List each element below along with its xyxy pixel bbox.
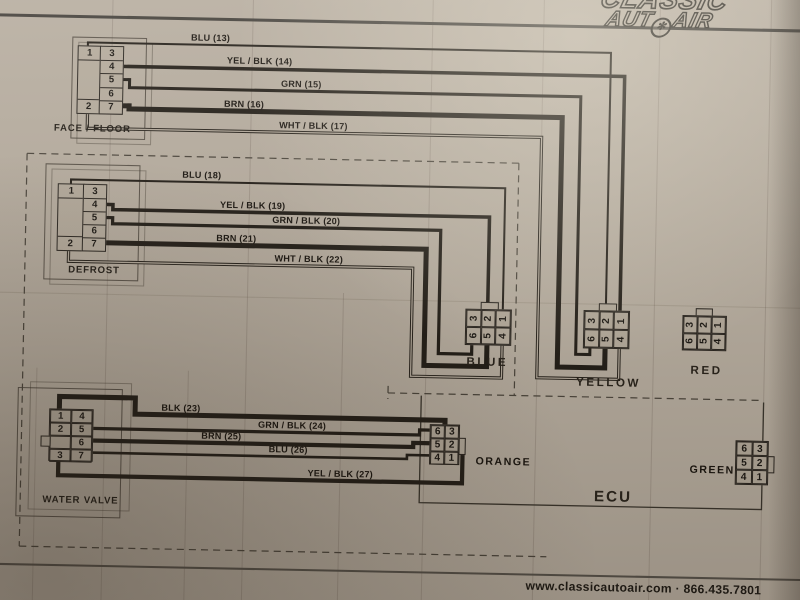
pin: 6	[584, 329, 599, 347]
wire-brn-16	[116, 106, 610, 368]
wire-label: BLU (18)	[182, 170, 221, 181]
pin: 2	[481, 310, 496, 327]
face-floor-label: FACE / FLOOR	[54, 123, 131, 136]
pin: 3	[445, 425, 459, 438]
wire-label: BRN (21)	[216, 233, 256, 244]
pin: 1	[711, 317, 725, 334]
pin: 1	[614, 312, 629, 330]
wire-blk-23	[59, 396, 445, 426]
pin: 2	[444, 439, 458, 452]
water-valve-label: WATER VALVE	[42, 494, 118, 507]
paper-sheet: Wiring Schematic / REVERSE CLASSIC AUT✻A…	[0, 0, 800, 600]
red-connector: 3 2 1 6 5 4	[682, 315, 727, 351]
pin: 7	[70, 449, 91, 463]
wire-brn-25	[91, 436, 430, 447]
wire-blu-13	[83, 42, 611, 310]
wire-label: WHT / BLK (17)	[279, 120, 348, 131]
pin: 1	[59, 184, 85, 199]
wire-label: GRN (15)	[281, 79, 322, 90]
pin: 4	[711, 333, 725, 350]
wire-grn-blk-20	[102, 218, 474, 355]
green-connector: 6 3 5 2 4 1	[735, 440, 769, 485]
defrost-right-column: 3 4 5 6 7	[82, 184, 108, 252]
pin: 3	[49, 449, 70, 463]
orange-connector: 6 3 5 2 4 1	[429, 424, 460, 465]
pin: 5	[697, 333, 711, 350]
pin: 7	[100, 100, 122, 114]
pin: 5	[481, 327, 496, 344]
wire-label: GRN / BLK (20)	[272, 215, 340, 226]
pin: 4	[430, 451, 444, 464]
pin: 1	[444, 452, 458, 465]
pin: 2	[599, 311, 614, 329]
pin: 4	[495, 327, 510, 344]
green-connector-label: GREEN	[689, 464, 735, 477]
face-floor-right-column: 3 4 5 6 7	[99, 46, 125, 115]
wire-label: YEL / BLK (14)	[227, 55, 292, 66]
wire-label: YEL / BLK (27)	[307, 468, 372, 479]
red-connector-label: RED	[690, 365, 722, 378]
water-valve-tab	[40, 435, 50, 446]
pin: 1	[496, 310, 511, 327]
pin: 3	[683, 316, 697, 333]
pin	[49, 436, 70, 450]
pin: 5	[71, 423, 92, 437]
wire-label: BLU (13)	[191, 32, 230, 43]
pin: 3	[466, 310, 481, 327]
pin: 4	[71, 410, 92, 424]
pin: 2	[50, 423, 71, 437]
pin: 6	[736, 441, 752, 455]
pin: 4	[736, 470, 752, 484]
water-valve-grid: 1 4 2 5 6 3 7	[48, 408, 93, 461]
pin: 5	[736, 455, 752, 469]
brand-logo: CLASSIC AUT✻AIR	[590, 0, 732, 46]
pin: 5	[430, 438, 444, 451]
pin: 2	[697, 316, 711, 333]
wire-label: WHT / BLK (22)	[274, 253, 343, 264]
pin: 5	[599, 329, 614, 347]
wire-label: BRN (25)	[201, 431, 241, 442]
pin: 1	[78, 46, 100, 61]
defrost-label: DEFROST	[68, 264, 120, 276]
yellow-connector-label: YELLOW	[576, 376, 641, 389]
pin: 6	[71, 436, 92, 450]
wire-label: BRN (16)	[224, 99, 264, 110]
pin: 6	[466, 327, 481, 344]
pin: 1	[50, 409, 71, 423]
wire-blu-26	[91, 449, 430, 460]
pin: 4	[613, 330, 628, 348]
wire-label: YEL / BLK (19)	[220, 200, 285, 211]
pin: 2	[77, 99, 99, 114]
pin: 1	[751, 470, 767, 484]
pin: 7	[83, 237, 105, 251]
wire-yel-blk-14	[117, 66, 625, 310]
defrost-left-column: 1 2	[56, 183, 85, 251]
pin: 2	[752, 456, 768, 470]
pin: 3	[752, 442, 768, 456]
pin: 3	[584, 311, 599, 329]
schematic-photo: Wiring Schematic / REVERSE CLASSIC AUT✻A…	[0, 0, 800, 600]
wire-label: BLU (26)	[269, 444, 308, 455]
pin: 6	[431, 425, 445, 438]
ecu-box	[419, 396, 763, 510]
blue-connector: 3 2 1 6 5 4	[465, 309, 512, 346]
pin: 6	[683, 333, 697, 350]
ecu-label: ECU	[594, 488, 632, 506]
pin: 2	[57, 236, 83, 251]
blue-connector-label: BLUE	[466, 356, 508, 369]
wire-grn-15	[116, 79, 595, 354]
wire-label: GRN / BLK (24)	[258, 420, 326, 431]
orange-connector-label: ORANGE	[475, 455, 531, 468]
wire-label: BLK (23)	[161, 403, 200, 414]
brand-logo-line2: AUT✻AIR	[602, 7, 736, 39]
yellow-connector: 3 2 1 6 5 4	[583, 310, 630, 349]
